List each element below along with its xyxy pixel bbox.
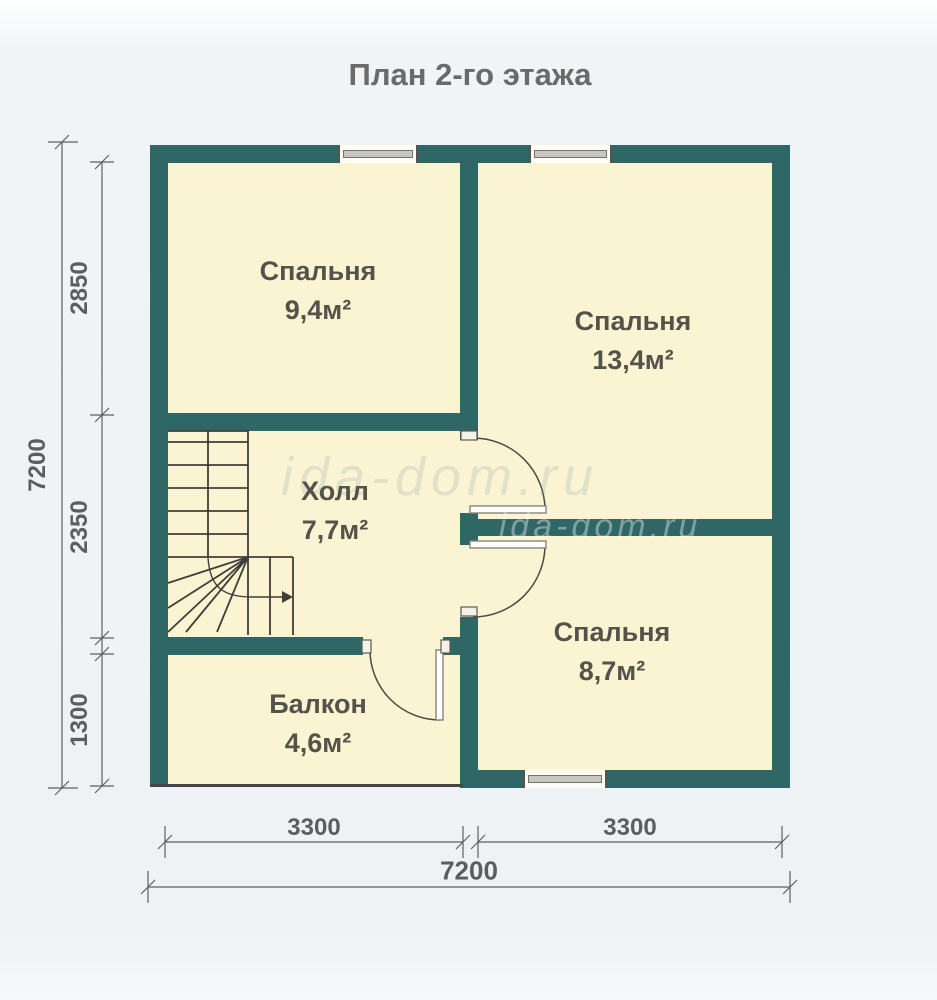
dim-label-left-seg-1: 2850 bbox=[66, 261, 94, 314]
room-name: Балкон bbox=[269, 685, 367, 724]
door-jamb bbox=[441, 640, 450, 653]
room-area: 4,6м² bbox=[269, 724, 367, 763]
room-label-balcony: Балкон 4,6м² bbox=[269, 685, 367, 763]
room-name: Спальня bbox=[554, 613, 671, 652]
room-area: 13,4м² bbox=[575, 341, 692, 380]
dim-label-bottom-seg-2: 3300 bbox=[603, 814, 656, 842]
room-area: 9,4м² bbox=[260, 291, 377, 330]
door-leaf-balcony bbox=[436, 650, 443, 720]
door-jamb bbox=[461, 431, 477, 440]
door-arc-balcony bbox=[370, 650, 440, 720]
door-jamb bbox=[461, 607, 477, 616]
dim-label-left-seg-2: 2350 bbox=[66, 500, 94, 553]
dim-label-bottom-total: 7200 bbox=[440, 856, 498, 887]
door-jamb bbox=[362, 640, 371, 653]
room-name: Спальня bbox=[575, 302, 692, 341]
watermark: ida-dom.ru bbox=[499, 508, 702, 547]
room-name: Холл bbox=[301, 472, 369, 511]
dim-label-left-seg-3: 1300 bbox=[66, 693, 94, 746]
room-label-bedroom-13: Спальня 13,4м² bbox=[575, 302, 692, 380]
dim-label-bottom-seg-1: 3300 bbox=[287, 814, 340, 842]
floor-plan-canvas: План 2-го этажа bbox=[0, 0, 937, 1000]
dim-label-left-total: 7200 bbox=[24, 438, 52, 491]
room-area: 7,7м² bbox=[301, 511, 369, 550]
room-area: 8,7м² bbox=[554, 652, 671, 691]
room-label-hall: Холл 7,7м² bbox=[301, 472, 369, 550]
door-arc-bedroom-8 bbox=[473, 545, 545, 617]
staircase bbox=[168, 431, 293, 635]
stair-direction-arrow-icon bbox=[282, 591, 293, 603]
room-label-bedroom-9: Спальня 9,4м² bbox=[260, 252, 377, 330]
room-label-bedroom-8: Спальня 8,7м² bbox=[554, 613, 671, 691]
room-name: Спальня bbox=[260, 252, 377, 291]
